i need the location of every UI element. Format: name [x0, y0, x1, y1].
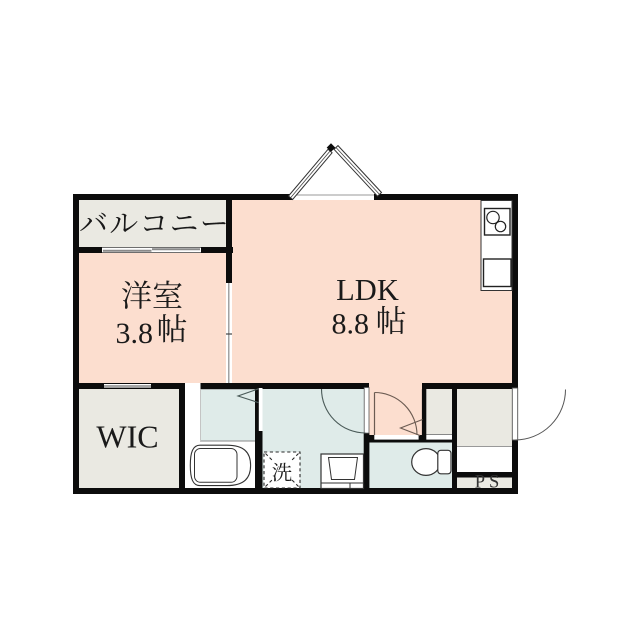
svg-text:WIC: WIC [96, 419, 158, 455]
svg-text:8.8: 8.8 [332, 308, 370, 341]
svg-text:3.8: 3.8 [116, 317, 154, 350]
svg-text:PS: PS [475, 473, 504, 493]
svg-text:LDK: LDK [336, 273, 399, 307]
